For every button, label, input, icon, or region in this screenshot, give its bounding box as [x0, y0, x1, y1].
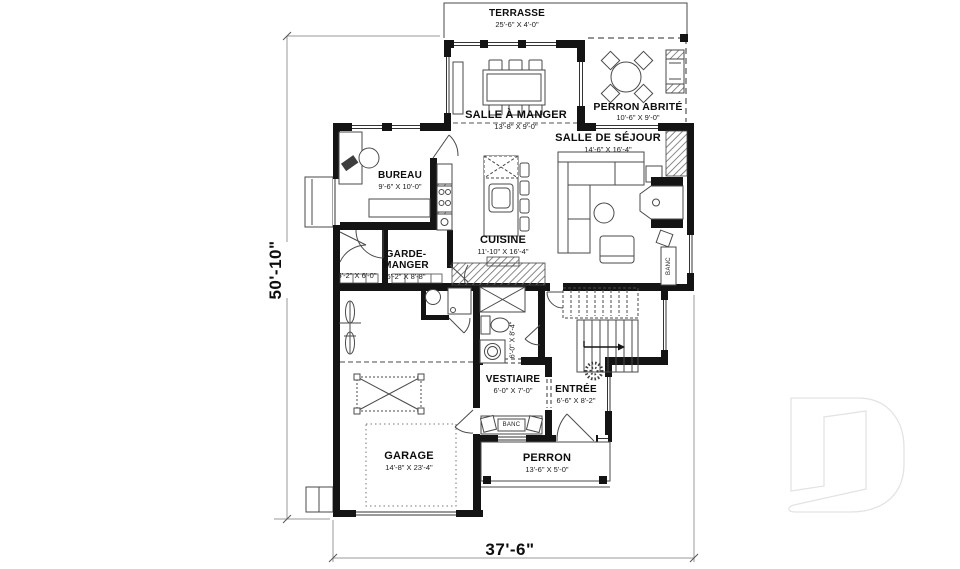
room-label-salle-eau: 6'-0" X 8'-4": [510, 322, 519, 358]
room-label-perron: PERRON 13'-6" X 5'-0": [523, 453, 571, 474]
stair-direction-arrow: [584, 341, 625, 351]
floor-plan-page: TERRASSE 25'-6" X 4'-0" PERRON ABRITÉ 10…: [0, 0, 960, 569]
bay-window-box: [305, 177, 333, 227]
room-label-garde-manger: GARDE-MANGER 6'-2" X 8'-8": [374, 250, 438, 281]
living-room-furniture: [558, 152, 683, 285]
porch-post: [599, 476, 607, 484]
coffee-table: [594, 203, 614, 223]
floor-plan-drawing: [0, 0, 960, 569]
room-label-cuisine: CUISINE 11'-10" X 16'-4": [478, 235, 529, 256]
bicycle: [339, 301, 361, 354]
armchair: [600, 236, 634, 263]
terrasse-outline: [444, 3, 687, 38]
window-bench: [453, 62, 463, 114]
porch-post: [680, 34, 688, 42]
credenza: [369, 199, 430, 217]
room-label-salle-a-manger: SALLE À MANGER 13'-8" X 9'-0": [465, 110, 567, 131]
exterior-steps-hatch: [666, 131, 687, 176]
garage-items: [339, 301, 473, 506]
room-name: TERRASSE: [489, 9, 545, 20]
laundry-sink: [426, 290, 441, 305]
round-table: [611, 62, 641, 92]
kitchen-furniture: [437, 156, 529, 236]
room-label-vestiaire: VESTIAIRE 6'-0" X 7'-0": [486, 375, 541, 395]
kitchen-bar: [487, 257, 519, 266]
bbq-grill: [666, 50, 684, 93]
covered-porch-furniture: [601, 50, 684, 103]
toilet: [481, 316, 509, 334]
room-dims: 25'-6" X 4'-0": [489, 20, 545, 29]
washer: [448, 288, 471, 314]
overall-width-dimension: 37'-6": [485, 540, 534, 560]
room-label-garage: GARAGE 14'-8" X 23'-4": [384, 451, 433, 472]
range-stove: [437, 164, 452, 230]
room-label-rangement: 5'-2" X 6'-0": [337, 271, 376, 280]
room-label-entree: ENTRÉE 6'-6" X 8'-2": [555, 385, 597, 405]
dining-furniture: [453, 60, 545, 115]
porch-post: [483, 476, 491, 484]
storage-rack: [354, 374, 424, 414]
room-label-perron-abrite: PERRON ABRITÉ 10'-6" X 9'-0": [593, 102, 682, 123]
room-label-terrasse: TERRASSE 25'-6" X 4'-0": [489, 9, 545, 29]
dining-table: [483, 70, 545, 105]
room-label-bureau: BUREAU 9'-6" X 10'-0": [378, 171, 422, 191]
laundry-fixtures: [426, 288, 472, 314]
office-chair: [359, 148, 379, 168]
bench-label-sejour: BANC: [666, 257, 672, 275]
fireplace: [640, 177, 683, 228]
room-label-salle-de-sejour: SALLE DE SÉJOUR 14'-6" X 16'-4": [555, 133, 661, 154]
overall-height-dimension: 50'-10": [266, 240, 286, 299]
bathroom-sink: [480, 340, 505, 363]
builder-logo-watermark: [789, 398, 904, 512]
bench-label-vestiaire: BANC: [503, 422, 521, 428]
